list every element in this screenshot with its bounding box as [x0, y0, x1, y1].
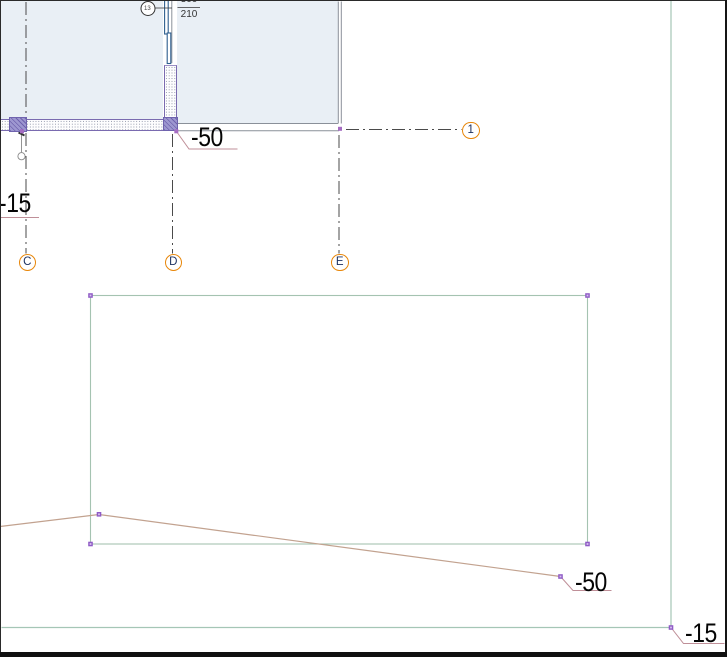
node-wall-corner[interactable] — [174, 129, 178, 133]
grid-bubble-E[interactable]: E — [331, 254, 349, 272]
canvas-border-left — [0, 0, 1, 657]
canvas-border-right[interactable] — [725, 0, 727, 657]
elevation-label-wall-corner[interactable]: -50 — [191, 124, 223, 151]
handle-center-dot — [90, 295, 92, 297]
cad-canvas[interactable]: C D E 1 -50 -15 -50 -15 13 300 210 — [0, 0, 727, 661]
elevation-label-left-wall[interactable]: -15 — [0, 190, 31, 217]
handle-center-dot — [670, 627, 672, 629]
canvas-border-bottom[interactable] — [0, 652, 727, 657]
handle-center-dot — [560, 576, 562, 578]
handle-center-dot — [587, 543, 589, 545]
handle-center-dot — [90, 543, 92, 545]
nodes-layer — [0, 0, 727, 661]
elevation-label-bottom-right[interactable]: -15 — [685, 620, 717, 647]
handle-center-dot — [587, 295, 589, 297]
door-dim-bottom: 210 — [177, 10, 201, 20]
grid-bubble-1[interactable]: 1 — [462, 122, 480, 140]
node-room-corner[interactable] — [338, 127, 342, 131]
grid-bubble-D[interactable]: D — [165, 254, 183, 272]
grid-bubble-C[interactable]: C — [19, 254, 37, 272]
handle-center-dot — [98, 513, 100, 515]
elevation-label-terrain-end[interactable]: -50 — [575, 569, 607, 596]
door-tag-id: 13 — [144, 6, 151, 12]
canvas-border-top — [0, 0, 727, 1]
node-wall-left[interactable] — [20, 129, 24, 133]
